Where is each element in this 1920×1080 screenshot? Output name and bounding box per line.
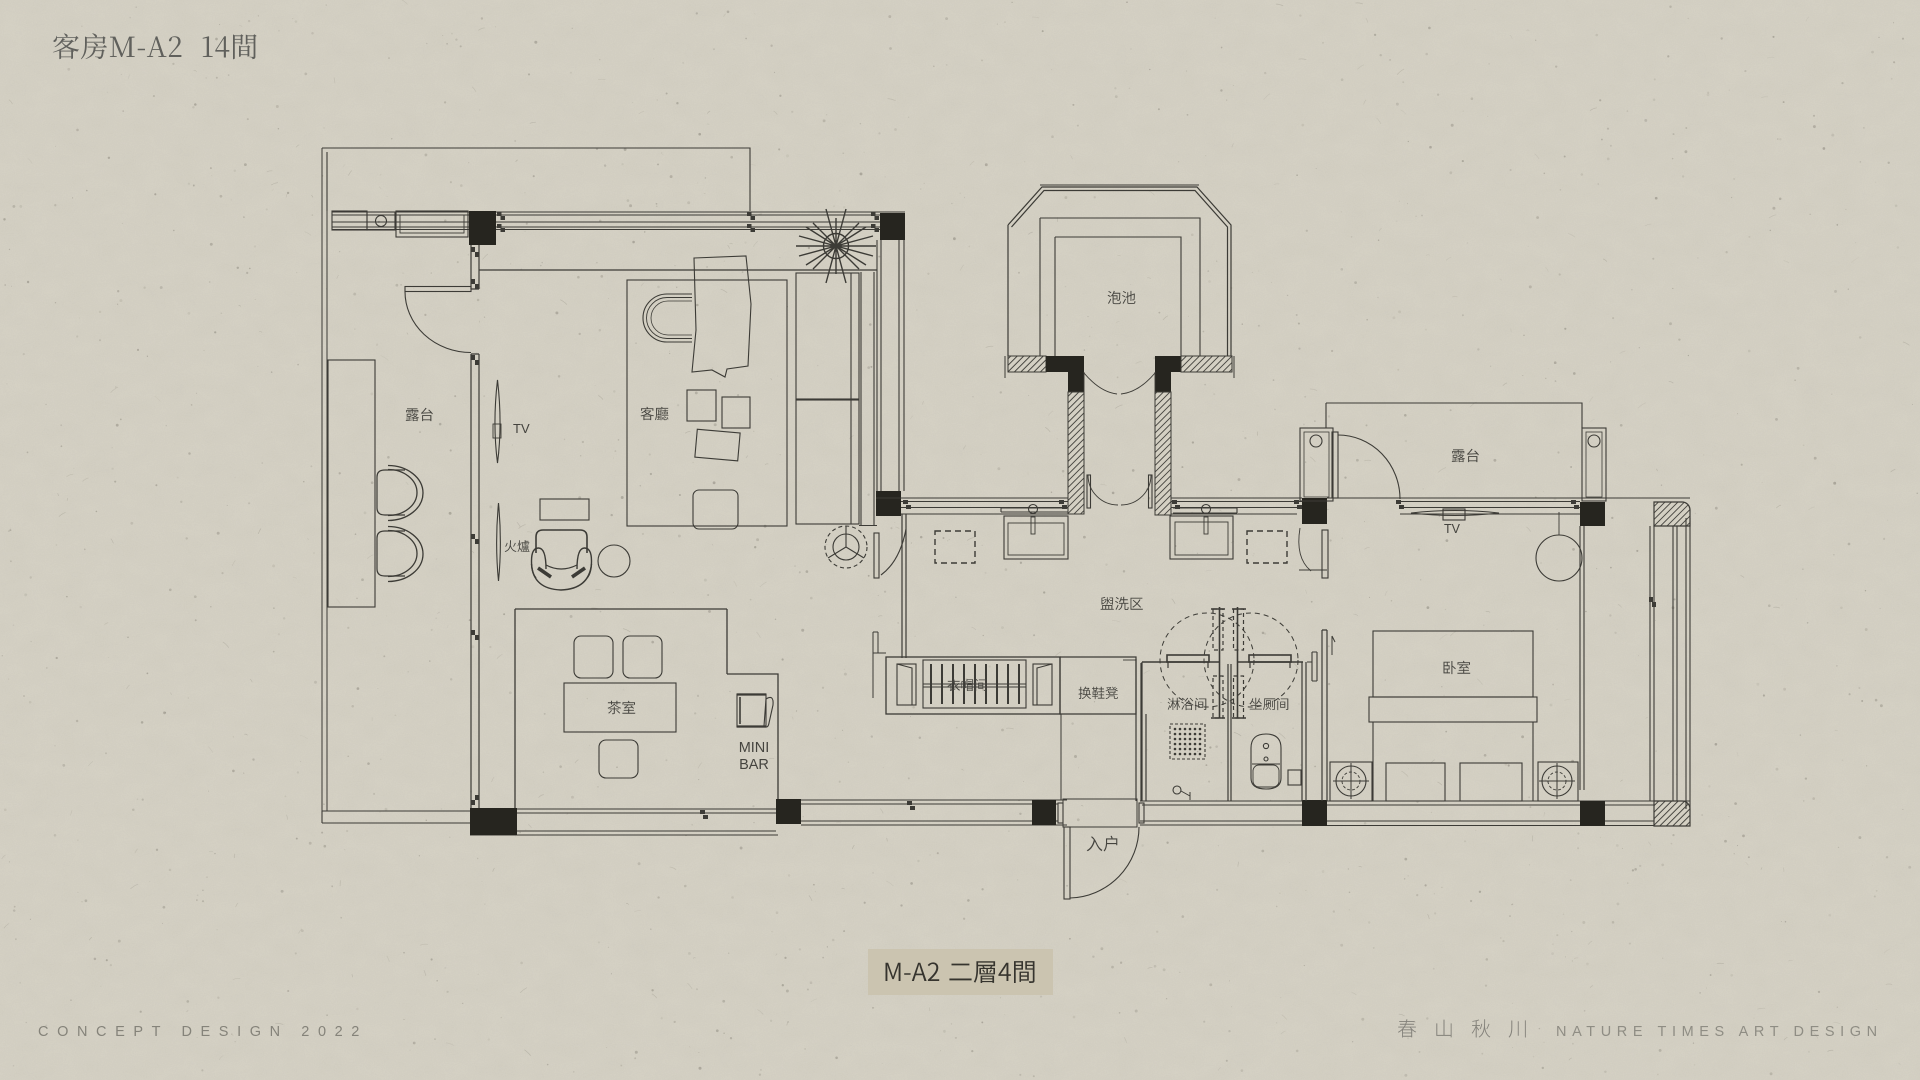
- svg-text:TV: TV: [513, 421, 530, 436]
- svg-text:NATURE TIMES ART DESIGN: NATURE TIMES ART DESIGN: [1556, 1024, 1883, 1040]
- svg-text:MINI: MINI: [739, 740, 770, 756]
- svg-text:BAR: BAR: [739, 757, 769, 773]
- svg-text:TV: TV: [1444, 522, 1461, 536]
- svg-text:CONCEPT DESIGN 2022: CONCEPT DESIGN 2022: [38, 1024, 368, 1040]
